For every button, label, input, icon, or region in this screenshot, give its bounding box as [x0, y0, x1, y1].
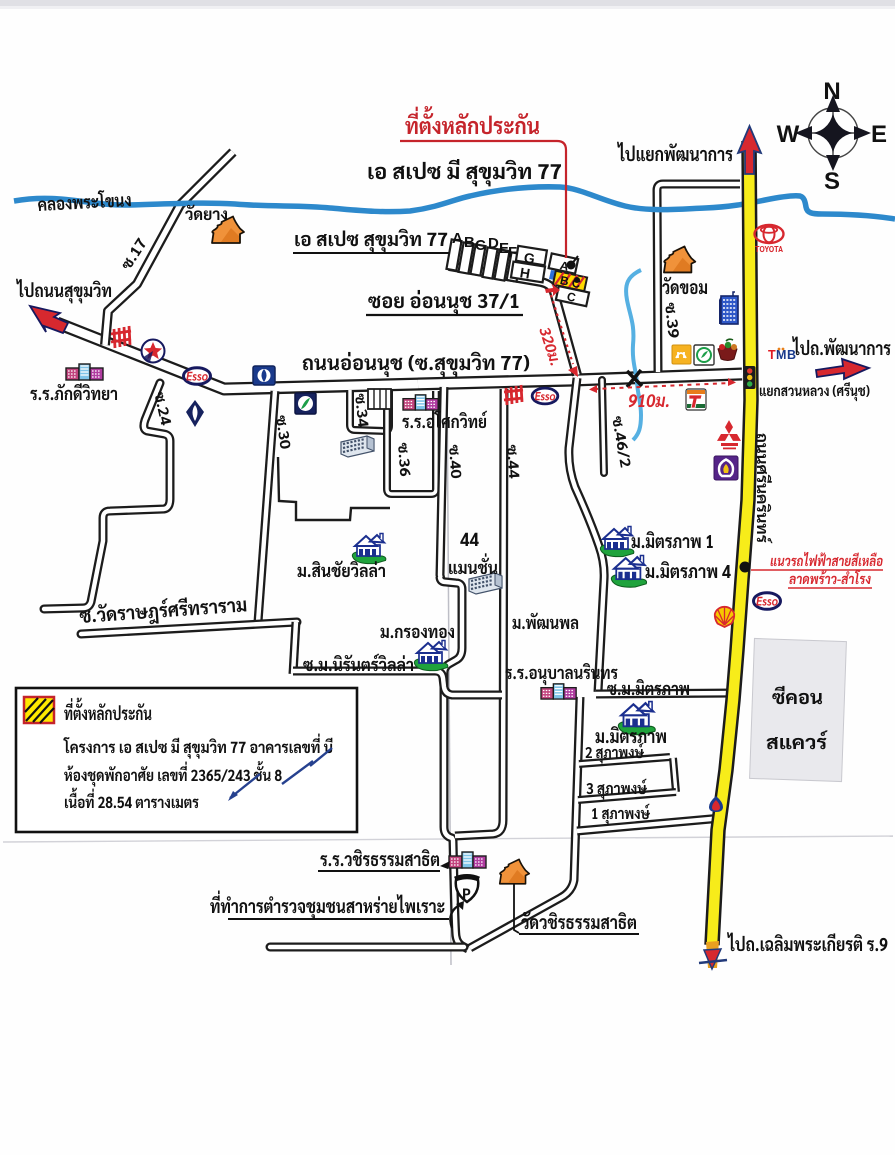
svg-text:S: S: [824, 168, 840, 195]
svg-text:B: B: [787, 348, 796, 362]
svg-text:B: B: [464, 234, 475, 251]
svg-text:W: W: [777, 121, 800, 148]
svg-text:C: C: [475, 237, 486, 254]
svg-text:F: F: [508, 244, 517, 261]
svg-text:A: A: [452, 230, 463, 247]
svg-text:E: E: [871, 121, 887, 148]
svg-text:T: T: [768, 348, 776, 362]
svg-text:M: M: [776, 348, 786, 362]
svg-text:N: N: [823, 78, 840, 105]
svg-text:D: D: [488, 235, 499, 252]
